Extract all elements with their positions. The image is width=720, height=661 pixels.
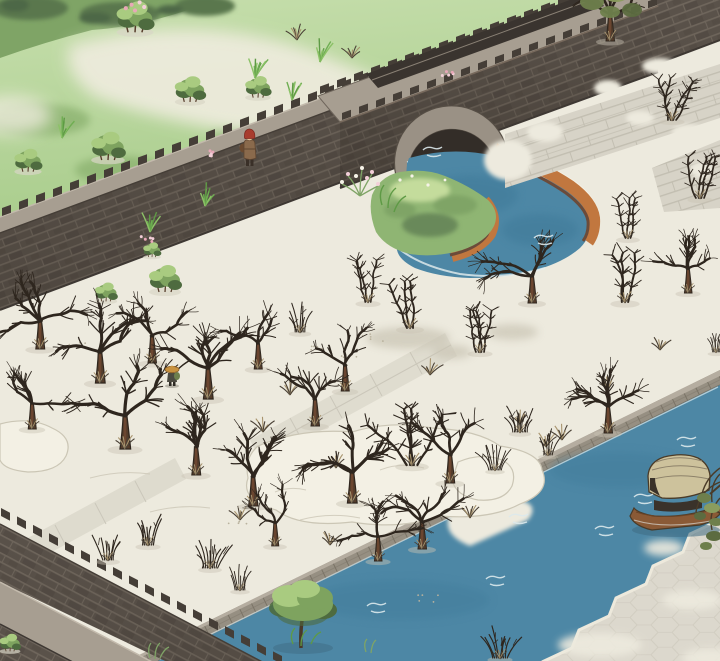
scene-canvas xyxy=(0,0,720,661)
game-viewport[interactable] xyxy=(0,0,720,661)
red-hood xyxy=(244,129,254,139)
